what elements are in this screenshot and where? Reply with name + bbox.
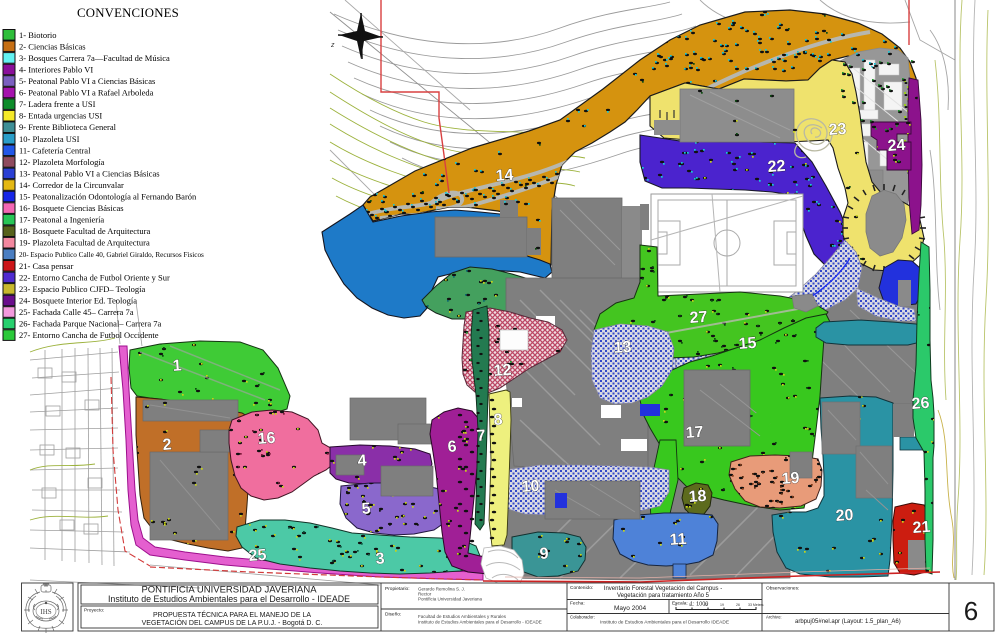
svg-text:24: 24 xyxy=(887,137,906,155)
svg-text:Colaborador:: Colaborador: xyxy=(570,615,595,620)
svg-text:26: 26 xyxy=(911,395,930,413)
svg-text:26- Fachada Parque Nacional– C: 26- Fachada Parque Nacional– Carrera 7a xyxy=(19,319,162,329)
svg-text:14- Corredor de la Circunvalar: 14- Corredor de la Circunvalar xyxy=(19,180,124,190)
svg-text:7- Ladera frente a USI: 7- Ladera frente a USI xyxy=(19,99,96,109)
svg-text:10: 10 xyxy=(521,478,540,496)
svg-text:25- Fachada Calle 45– Carrera: 25- Fachada Calle 45– Carrera 7a xyxy=(19,307,134,317)
svg-text:12- Plazoleta Morfología: 12- Plazoleta Morfología xyxy=(19,157,105,167)
svg-text:3- Bosques Carrera 7a—Facultad: 3- Bosques Carrera 7a—Facultad de Música xyxy=(19,53,170,63)
svg-text:9: 9 xyxy=(539,545,549,563)
svg-text:2: 2 xyxy=(162,436,172,454)
svg-text:23- Espacio Publico CJFD– Teol: 23- Espacio Publico CJFD– Teología xyxy=(19,284,145,294)
svg-text:5: 5 xyxy=(361,500,371,518)
svg-text:22: 22 xyxy=(767,158,786,176)
svg-text:9- Frente Biblioteca General: 9- Frente Biblioteca General xyxy=(19,122,117,132)
svg-text:18: 18 xyxy=(688,488,707,506)
svg-text:13- Peatonal Pablo VI a Cienci: 13- Peatonal Pablo VI a Ciencias Básicas xyxy=(19,168,160,178)
svg-text:Instituto de Estudios Ambienta: Instituto de Estudios Ambientales para e… xyxy=(108,594,350,604)
svg-text:16: 16 xyxy=(257,430,276,448)
svg-text:Observaciones:: Observaciones: xyxy=(766,586,799,592)
svg-text:Diseño:: Diseño: xyxy=(385,612,401,618)
svg-text:Facultad de Estudios Ambiental: Facultad de Estudios Ambientales y Rural… xyxy=(418,614,507,619)
svg-text:11: 11 xyxy=(669,531,687,549)
svg-text:20: 20 xyxy=(835,507,854,525)
svg-text:27: 27 xyxy=(689,309,708,327)
svg-text:2- Ciencias Básicas: 2- Ciencias Básicas xyxy=(19,41,86,51)
svg-text:1- Biotorio: 1- Biotorio xyxy=(19,30,57,40)
svg-text:Fecha:: Fecha: xyxy=(570,601,585,607)
svg-text:26: 26 xyxy=(736,603,740,607)
svg-text:24- Bosquete Interior Ed. Teol: 24- Bosquete Interior Ed. Teología xyxy=(19,296,137,306)
svg-text:Mayo 2004: Mayo 2004 xyxy=(614,605,647,612)
svg-text:7: 7 xyxy=(476,427,486,445)
svg-text:27- Entorno Cancha de Futbol O: 27- Entorno Cancha de Futbol Occidente xyxy=(19,330,159,340)
svg-text:PROPUESTA TÉCNICA PARA EL MANE: PROPUESTA TÉCNICA PARA EL MANEJO DE LA xyxy=(153,610,311,619)
svg-text:arbpuj05#nel.apr (Layout: 1.: arbpuj05#nel.apr (Layout: 1.5_plan_A6) xyxy=(795,619,901,625)
svg-text:8- Entada urgencias USI: 8- Entada urgencias USI xyxy=(19,111,102,121)
svg-text:16- Bosquete Ciencias Básicas: 16- Bosquete Ciencias Básicas xyxy=(19,203,124,213)
svg-text:18- Bosquete Facultad de Arqui: 18- Bosquete Facultad de Arquitectura xyxy=(19,226,150,236)
svg-text:12: 12 xyxy=(493,362,512,380)
svg-text:CONVENCIONES: CONVENCIONES xyxy=(77,6,179,20)
svg-text:Propietario:: Propietario: xyxy=(385,586,410,592)
svg-text:11- Cafetería Central: 11- Cafetería Central xyxy=(19,145,91,155)
svg-text:22- Entorno Cancha de Futbol O: 22- Entorno Cancha de Futbol Oriente y S… xyxy=(19,272,170,282)
svg-text:17- Peatonal a Ingeniería: 17- Peatonal a Ingeniería xyxy=(19,215,104,225)
svg-text:6: 6 xyxy=(964,596,978,626)
svg-text:21- Casa pensar: 21- Casa pensar xyxy=(19,261,73,271)
svg-text:12: 12 xyxy=(704,603,708,607)
svg-text:33 Meters: 33 Meters xyxy=(748,603,764,607)
svg-text:4: 4 xyxy=(357,452,367,470)
svg-text:14: 14 xyxy=(495,167,514,185)
svg-text:6: 6 xyxy=(447,438,457,456)
svg-text:z: z xyxy=(330,42,335,49)
svg-text:Vegetación para tratamiento Añ: Vegetación para tratamiento Año 5 xyxy=(617,593,710,599)
svg-text:4- Interiores Pablo VI: 4- Interiores Pablo VI xyxy=(19,65,93,75)
svg-text:10- Plazoleta USI: 10- Plazoleta USI xyxy=(19,134,80,144)
svg-text:IHS: IHS xyxy=(40,608,51,616)
svg-text:5: 5 xyxy=(689,603,691,607)
svg-text:Pontificia Universidad Javeria: Pontificia Universidad Javeriana xyxy=(418,597,483,602)
svg-text:8: 8 xyxy=(493,411,503,429)
svg-text:17: 17 xyxy=(685,424,704,442)
svg-text:Proyecto:: Proyecto: xyxy=(84,608,104,614)
svg-text:13: 13 xyxy=(613,339,632,357)
svg-text:Contenido:: Contenido: xyxy=(570,585,593,591)
svg-text:23: 23 xyxy=(828,121,847,139)
svg-text:1: 1 xyxy=(172,357,182,375)
svg-text:6- Peatonal Pablo VI a Rafael: 6- Peatonal Pablo VI a Rafael Arboleda xyxy=(19,88,154,98)
svg-text:19: 19 xyxy=(781,470,800,488)
svg-text:19: 19 xyxy=(720,603,724,607)
svg-text:19- Plazoleta Facultad de Arqu: 19- Plazoleta Facultad de Arquitectura xyxy=(19,238,150,248)
svg-text:15- Peatonalización Odontologí: 15- Peatonalización Odontología al Ferna… xyxy=(19,192,197,202)
svg-text:Instituto de Estudios Ambienta: Instituto de Estudios Ambientales para e… xyxy=(600,620,729,626)
svg-text:Archivo:: Archivo: xyxy=(766,615,782,620)
svg-text:20- Espacio Publico Calle 40,: 20- Espacio Publico Calle 40, Gabriel Gi… xyxy=(19,251,204,259)
svg-text:5- Peatonal Pablo VI a Ciencia: 5- Peatonal Pablo VI a Ciencias Básicas xyxy=(19,76,155,86)
svg-text:15: 15 xyxy=(738,335,757,353)
svg-text:Instituto de Estudios Ambienta: Instituto de Estudios Ambientales para e… xyxy=(418,620,542,625)
svg-text:25: 25 xyxy=(248,547,267,565)
svg-text:3: 3 xyxy=(375,550,385,568)
svg-text:VEGETACIÓN DEL CAMPUS DE LA P.: VEGETACIÓN DEL CAMPUS DE LA P.U.J. - Bog… xyxy=(142,618,323,627)
svg-text:Inventario Forestal Vegetación: Inventario Forestal Vegetación del Campu… xyxy=(604,586,722,592)
svg-text:21: 21 xyxy=(912,519,931,537)
svg-text:0: 0 xyxy=(675,603,677,607)
